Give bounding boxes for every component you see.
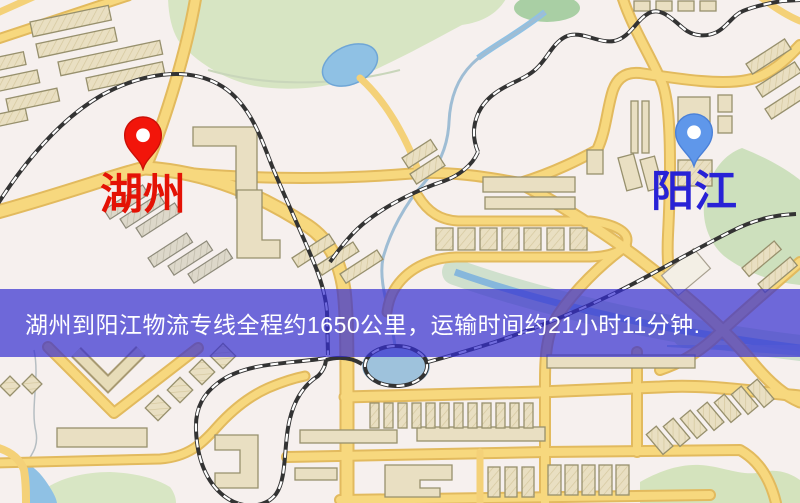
long-building-southwest [57, 428, 147, 447]
map-stage: 湖州阳江 湖州到阳江物流专线全程约1650公里，运输时间约21小时11分钟. [0, 0, 800, 503]
base-map[interactable] [0, 0, 800, 503]
hook-building [385, 465, 452, 497]
city-label-huzhou: 湖州 [100, 174, 186, 217]
route-info-text: 湖州到阳江物流专线全程约1650公里，运输时间约21小时11分钟. [0, 306, 701, 340]
city-label-yangjiang: 阳江 [651, 171, 737, 214]
map-pin-huzhou[interactable]: 湖州 [121, 116, 165, 171]
pin-icon [672, 113, 716, 168]
route-info-banner: 湖州到阳江物流专线全程约1650公里，运输时间约21小时11分钟. [0, 289, 800, 357]
pin-icon [121, 116, 165, 171]
c-building [215, 435, 258, 488]
map-pin-yangjiang[interactable]: 阳江 [672, 113, 716, 168]
